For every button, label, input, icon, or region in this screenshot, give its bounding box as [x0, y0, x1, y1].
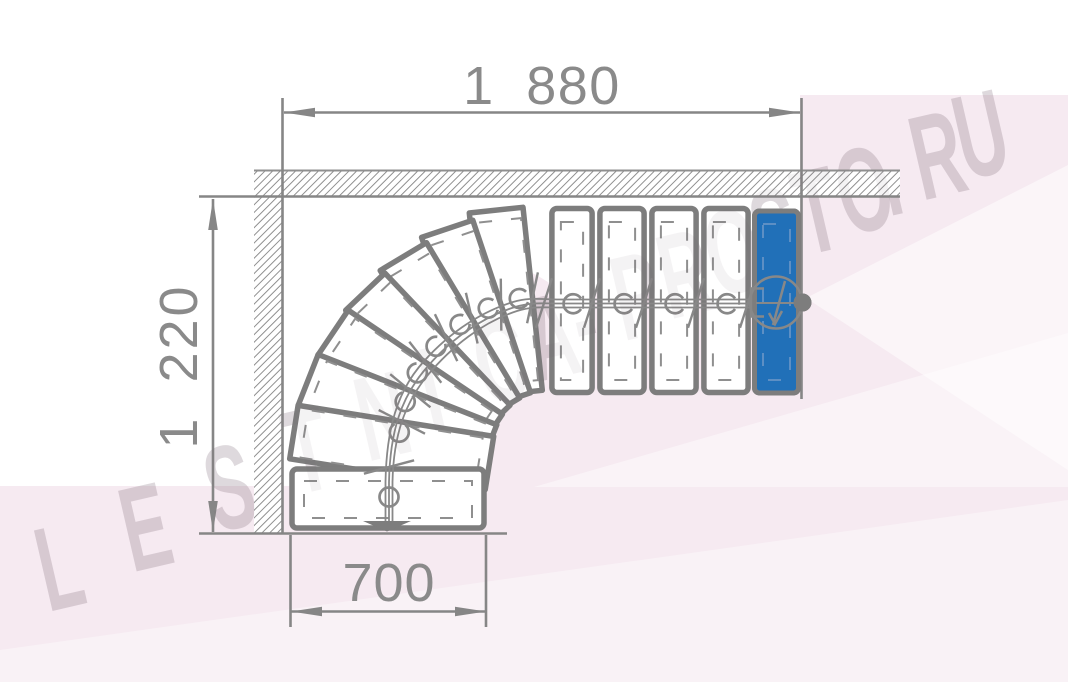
svg-text:1 880: 1 880 — [463, 56, 621, 116]
svg-text:700: 700 — [342, 553, 435, 613]
